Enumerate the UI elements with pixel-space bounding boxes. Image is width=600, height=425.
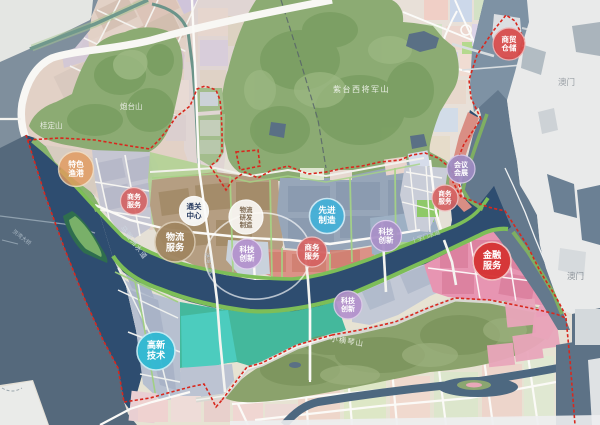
svg-text:会展: 会展 <box>454 168 469 177</box>
svg-text:创新: 创新 <box>378 235 394 245</box>
svg-text:商贸: 商贸 <box>502 34 517 44</box>
svg-text:高新: 高新 <box>147 339 165 350</box>
svg-text:服务: 服务 <box>305 251 320 261</box>
svg-text:紫台西将军山: 紫台西将军山 <box>333 84 390 94</box>
svg-text:物流: 物流 <box>240 205 253 214</box>
svg-text:商务: 商务 <box>127 192 142 201</box>
svg-text:研发: 研发 <box>240 213 253 222</box>
svg-text:澳门: 澳门 <box>567 271 584 281</box>
svg-text:科技: 科技 <box>379 226 394 236</box>
svg-text:中心: 中心 <box>187 210 202 220</box>
svg-text:先进: 先进 <box>318 204 336 215</box>
svg-text:科技: 科技 <box>240 244 255 254</box>
svg-text:创新: 创新 <box>239 253 255 263</box>
svg-text:制造: 制造 <box>240 220 253 229</box>
svg-text:制造: 制造 <box>318 214 336 225</box>
svg-text:创新: 创新 <box>340 304 355 313</box>
svg-text:特色: 特色 <box>68 159 84 169</box>
svg-text:服务: 服务 <box>166 242 185 253</box>
svg-text:仓储: 仓储 <box>501 43 517 53</box>
svg-text:炮台山: 炮台山 <box>120 101 143 111</box>
svg-text:服务: 服务 <box>483 260 502 271</box>
svg-text:服务: 服务 <box>438 197 452 206</box>
svg-text:科技: 科技 <box>341 296 356 305</box>
svg-text:通关: 通关 <box>187 201 202 211</box>
svg-text:桂定山: 桂定山 <box>40 120 63 130</box>
svg-text:物流: 物流 <box>166 231 185 242</box>
svg-text:商务: 商务 <box>438 189 452 198</box>
svg-text:渔港: 渔港 <box>68 168 84 178</box>
svg-text:服务: 服务 <box>127 200 142 209</box>
svg-text:会议: 会议 <box>454 160 469 169</box>
svg-text:技术: 技术 <box>147 350 166 361</box>
svg-text:澳门: 澳门 <box>558 77 575 87</box>
svg-text:金融: 金融 <box>482 249 502 260</box>
svg-text:商务: 商务 <box>305 242 320 252</box>
